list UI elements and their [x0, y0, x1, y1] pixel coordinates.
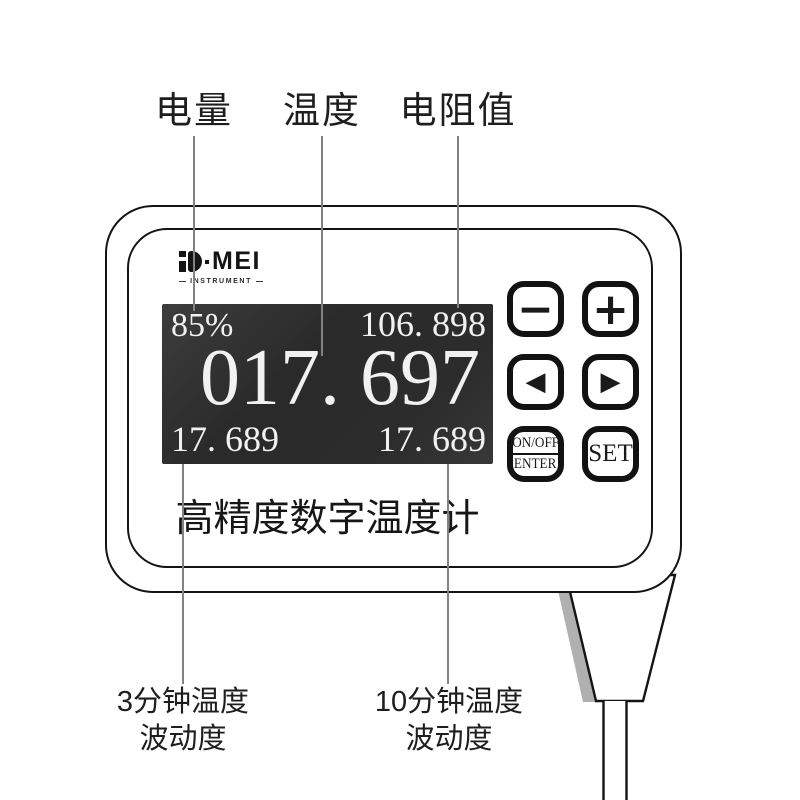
lcd-display: 85% 106. 898 017. 697 17. 689 17. 689 — [162, 304, 493, 464]
brand-d-bowl-icon — [188, 251, 202, 272]
callout-line-temperature — [321, 136, 323, 356]
callout-label-10min-line1: 10分钟温度 — [339, 684, 559, 721]
minus-button[interactable]: − — [507, 281, 564, 337]
brand-logo: MEI INSTRUMENT — [179, 251, 359, 285]
fluctuation-10min-value: 17. 689 — [378, 421, 486, 457]
brand-letters: MEI — [212, 251, 261, 272]
power-enter-button[interactable]: ON/OFF ENTER — [507, 426, 564, 482]
brand-separator-dot-icon — [205, 260, 209, 264]
power-enter-button-bottom-label: ENTER — [514, 456, 557, 473]
callout-label-resistance: 电阻值 — [395, 90, 521, 132]
device-title: 高精度数字温度计 — [162, 487, 493, 542]
brand-tagline-text: INSTRUMENT — [190, 278, 252, 285]
device-body: MEI INSTRUMENT 85% 106. 898 017. 697 17.… — [105, 205, 682, 593]
callout-label-3min-line2: 波动度 — [73, 721, 293, 758]
brand-d-stem-icon — [179, 251, 186, 272]
callout-label-temperature: 温度 — [280, 90, 364, 132]
temperature-reading: 017. 697 — [200, 338, 480, 418]
set-button[interactable]: SET — [582, 426, 639, 482]
power-enter-divider — [513, 453, 558, 455]
callout-line-resistance — [457, 136, 459, 308]
callout-line-10min-fluctuation — [447, 464, 449, 684]
brand-tagline: INSTRUMENT — [179, 278, 263, 285]
callout-label-10min-line2: 波动度 — [339, 721, 559, 758]
left-arrow-button[interactable]: ◀ — [507, 354, 564, 410]
cable-wire — [604, 701, 627, 800]
callout-line-battery — [193, 136, 195, 311]
callout-label-3min-line1: 3分钟温度 — [73, 684, 293, 721]
plus-button[interactable]: + — [582, 281, 639, 337]
right-arrow-button[interactable]: ▶ — [582, 354, 639, 410]
fluctuation-3min-value: 17. 689 — [171, 421, 279, 457]
callout-line-3min-fluctuation — [182, 464, 184, 684]
callout-label-3min-fluctuation: 3分钟温度 波动度 — [73, 684, 293, 758]
callout-label-10min-fluctuation: 10分钟温度 波动度 — [339, 684, 559, 758]
product-shot: 电量 温度 电阻值 3分钟温度 波动度 10分钟温度 波动度 MEI — [0, 0, 800, 800]
power-enter-button-top-label: ON/OFF — [512, 435, 559, 452]
callout-label-battery: 电量 — [152, 90, 236, 132]
